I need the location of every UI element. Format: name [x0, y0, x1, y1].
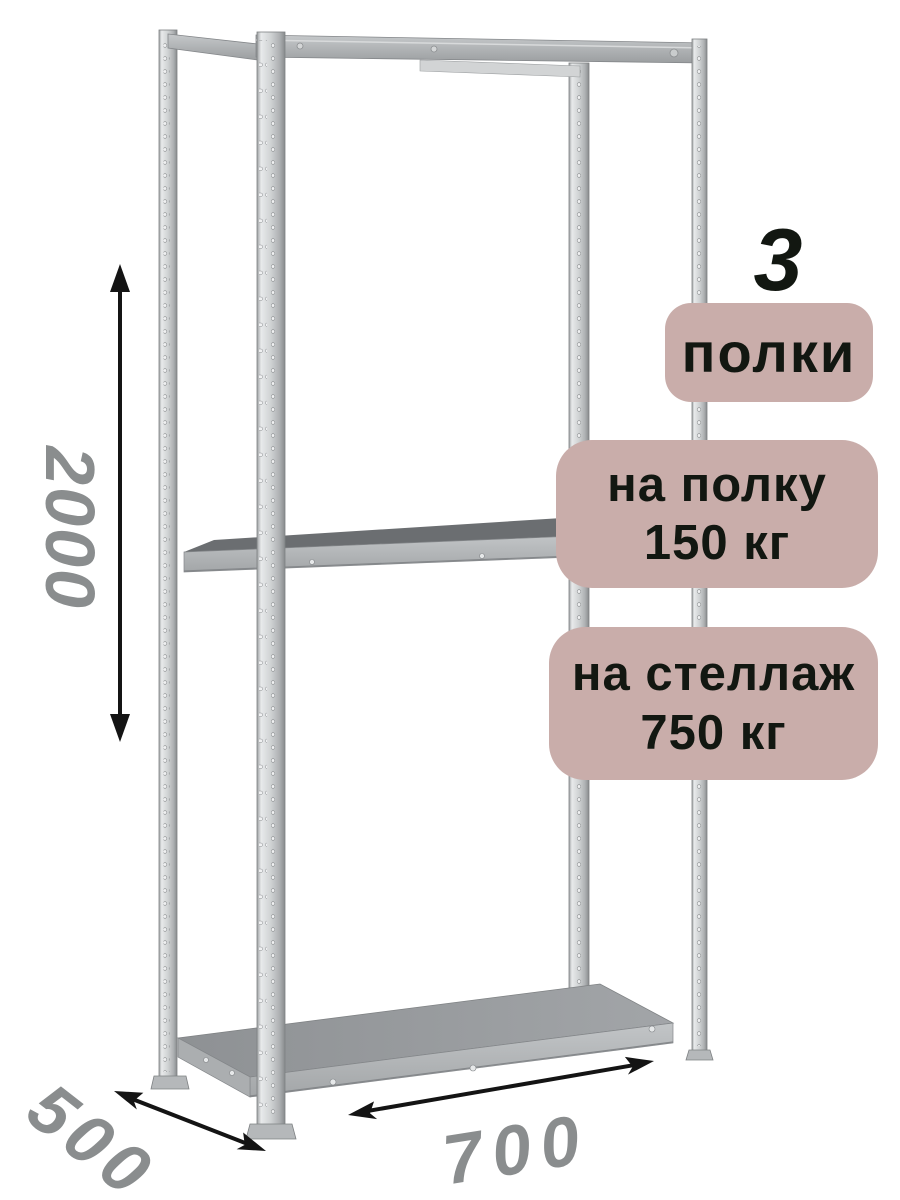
width-label: 700: [438, 1099, 595, 1199]
per-rack-load-line2: 750 кг: [640, 704, 786, 763]
rack-middle-shelf: [184, 518, 601, 572]
shelf-count-label: полки: [682, 320, 857, 385]
per-shelf-load-line2: 150 кг: [644, 514, 790, 572]
shelf-count-badge: полки: [665, 303, 873, 402]
per-rack-load-badge: на стеллаж 750 кг: [549, 627, 878, 780]
rack-bottom-shelf: [178, 984, 673, 1097]
rack-side-top-beam: [168, 34, 258, 60]
rack-post-front-left: [246, 32, 296, 1139]
per-shelf-load-line1: на полку: [607, 456, 827, 514]
rack-top-shelf: [256, 35, 706, 63]
per-shelf-load-badge: на полку 150 кг: [556, 440, 878, 588]
depth-label: 500: [13, 1068, 170, 1200]
shelving-rack-illustration: 2000 500 700: [0, 0, 900, 1200]
rack-post-back-left: [151, 30, 189, 1089]
product-image: 2000 500 700 3 полки на полку 150 кг на …: [0, 0, 900, 1200]
height-label: 2000: [31, 444, 109, 610]
rack-back-top-beam: [420, 60, 580, 77]
height-dimension-arrow: [110, 264, 130, 742]
per-rack-load-line1: на стеллаж: [572, 645, 855, 704]
shelf-count-number: 3: [700, 220, 856, 300]
